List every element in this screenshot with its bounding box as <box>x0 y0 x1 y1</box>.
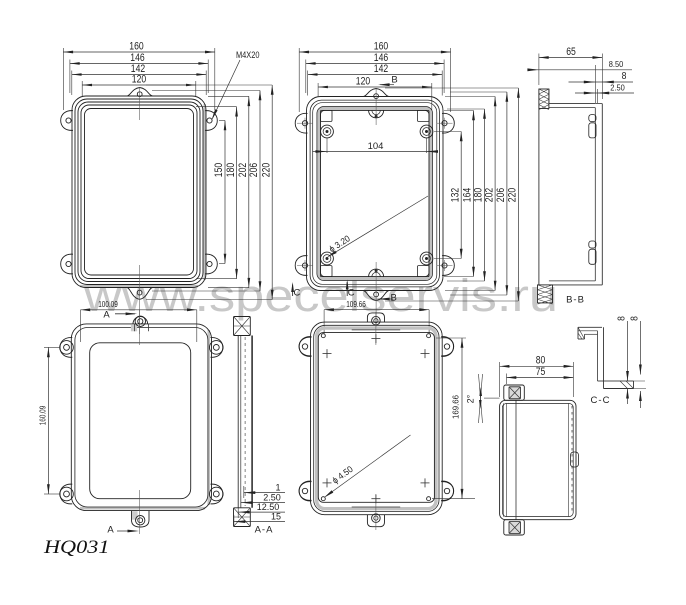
svg-text:109.66: 109.66 <box>346 299 366 309</box>
svg-text:220: 220 <box>507 188 519 202</box>
svg-text:180: 180 <box>225 163 237 177</box>
svg-text:2°: 2° <box>466 394 476 403</box>
svg-text:B-B: B-B <box>566 295 585 306</box>
svg-text:C-C: C-C <box>591 395 611 406</box>
svg-text:B: B <box>391 75 397 86</box>
svg-text:HQ031: HQ031 <box>43 537 110 558</box>
svg-text:169.66: 169.66 <box>451 395 461 419</box>
svg-text:132: 132 <box>449 188 461 202</box>
svg-text:15: 15 <box>271 511 281 521</box>
svg-text:8: 8 <box>622 71 627 82</box>
svg-text:206: 206 <box>495 188 507 202</box>
svg-text:160.09: 160.09 <box>38 406 48 426</box>
svg-text:80: 80 <box>536 355 546 367</box>
svg-text:8: 8 <box>616 316 627 321</box>
svg-text:12.50: 12.50 <box>257 502 280 512</box>
svg-text:M4X20: M4X20 <box>236 50 260 60</box>
svg-text:202: 202 <box>483 188 495 202</box>
svg-text:220: 220 <box>260 163 272 177</box>
svg-text:142: 142 <box>374 63 388 75</box>
svg-text:206: 206 <box>248 163 260 177</box>
svg-text:8.50: 8.50 <box>609 59 624 69</box>
svg-text:A: A <box>103 309 110 320</box>
svg-text:B: B <box>391 293 397 304</box>
svg-text:75: 75 <box>536 366 546 378</box>
svg-text:8: 8 <box>629 316 640 321</box>
svg-text:100.09: 100.09 <box>98 299 118 309</box>
svg-text:A-A: A-A <box>255 525 274 536</box>
svg-text:160: 160 <box>129 40 143 52</box>
svg-text:150: 150 <box>213 163 225 177</box>
svg-text:104: 104 <box>368 141 384 152</box>
svg-text:2.50: 2.50 <box>610 83 625 93</box>
svg-text:2.50: 2.50 <box>263 492 281 502</box>
svg-text:C: C <box>293 288 300 299</box>
svg-text:A: A <box>107 525 114 536</box>
svg-text:160: 160 <box>374 40 388 52</box>
svg-text:1: 1 <box>275 482 280 492</box>
svg-text:120: 120 <box>356 75 370 87</box>
svg-text:65: 65 <box>566 46 576 58</box>
svg-text:202: 202 <box>237 163 249 177</box>
svg-text:C: C <box>348 288 355 299</box>
svg-text:120: 120 <box>132 73 146 85</box>
